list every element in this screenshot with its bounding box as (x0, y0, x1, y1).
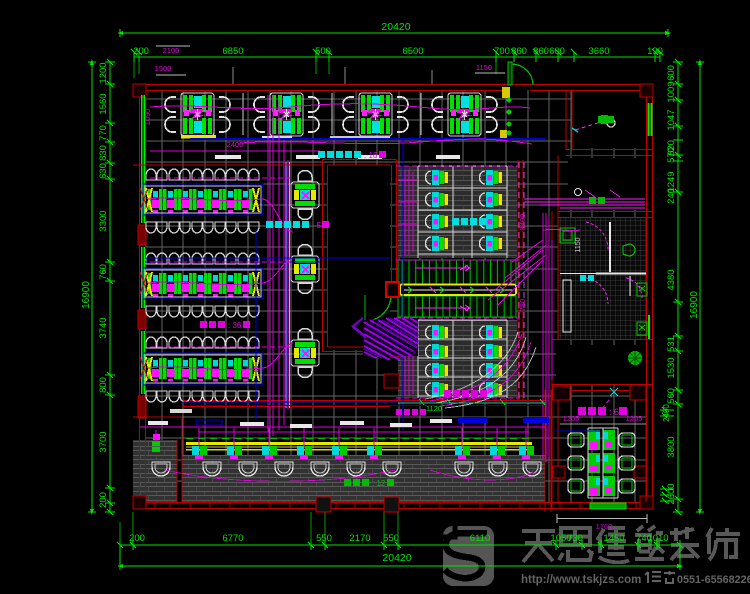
svg-text:3300: 3300 (98, 210, 109, 231)
svg-text:570: 570 (666, 147, 677, 163)
svg-text:1120: 1120 (426, 404, 442, 413)
svg-text:1090: 1090 (143, 109, 152, 126)
svg-text:: 5: : 5 (312, 221, 321, 230)
svg-text:550: 550 (316, 533, 332, 544)
svg-text:630: 630 (98, 163, 109, 179)
svg-text:3800: 3800 (666, 436, 677, 457)
svg-text:770: 770 (98, 125, 109, 141)
svg-text:240: 240 (666, 188, 677, 204)
svg-text:200: 200 (129, 533, 145, 544)
svg-text:: 6: : 6 (609, 407, 619, 417)
svg-text:600: 600 (666, 65, 677, 81)
svg-text:6500: 6500 (402, 46, 423, 57)
svg-text:560: 560 (666, 388, 677, 404)
svg-text:16900: 16900 (81, 281, 92, 309)
svg-text:1760: 1760 (596, 522, 613, 531)
svg-text:20420: 20420 (381, 21, 410, 33)
svg-text:780: 780 (518, 299, 527, 312)
svg-text:2400: 2400 (227, 140, 244, 149)
svg-text:2100: 2100 (163, 46, 180, 55)
svg-text:730: 730 (567, 533, 583, 544)
svg-text:550: 550 (383, 533, 399, 544)
svg-text:200: 200 (133, 46, 149, 57)
svg-text:6770: 6770 (222, 533, 243, 544)
svg-text:1047: 1047 (666, 109, 677, 130)
svg-text:1150: 1150 (476, 63, 492, 72)
svg-text:3740: 3740 (98, 317, 109, 338)
svg-text:800: 800 (98, 377, 109, 393)
svg-text:: 36: : 36 (228, 321, 242, 330)
svg-text:1205: 1205 (626, 414, 643, 423)
svg-text:1530: 1530 (666, 357, 677, 378)
svg-text:4380: 4380 (666, 269, 677, 290)
svg-text:2170: 2170 (349, 533, 370, 544)
svg-text:20420: 20420 (382, 552, 411, 564)
svg-text:760: 760 (98, 264, 109, 280)
svg-text:: 16: : 16 (364, 151, 378, 160)
svg-text:1560: 1560 (98, 93, 109, 114)
svg-text:200: 200 (98, 492, 109, 508)
svg-text:6850: 6850 (222, 46, 243, 57)
svg-text:16900: 16900 (689, 291, 700, 319)
svg-text:: 12: : 12 (372, 479, 386, 488)
svg-text:1010: 1010 (647, 533, 668, 544)
svg-text:3700: 3700 (98, 431, 109, 452)
svg-text:1205: 1205 (563, 414, 580, 423)
svg-text:3660: 3660 (588, 46, 609, 57)
svg-text:830: 830 (98, 145, 109, 161)
svg-text:http://www.tskjzs.com: http://www.tskjzs.com (521, 574, 641, 586)
svg-text:1500: 1500 (155, 64, 172, 73)
svg-text:0551-65568226: 0551-65568226 (677, 574, 750, 586)
svg-text:6110: 6110 (470, 533, 490, 544)
svg-text:1009: 1009 (666, 81, 677, 102)
svg-text:2400: 2400 (662, 404, 671, 422)
svg-text:1450: 1450 (603, 533, 624, 544)
svg-text:531: 531 (666, 336, 677, 352)
svg-text:1150: 1150 (575, 237, 582, 252)
svg-text:1200: 1200 (98, 62, 109, 83)
svg-text:3400: 3400 (518, 214, 527, 231)
